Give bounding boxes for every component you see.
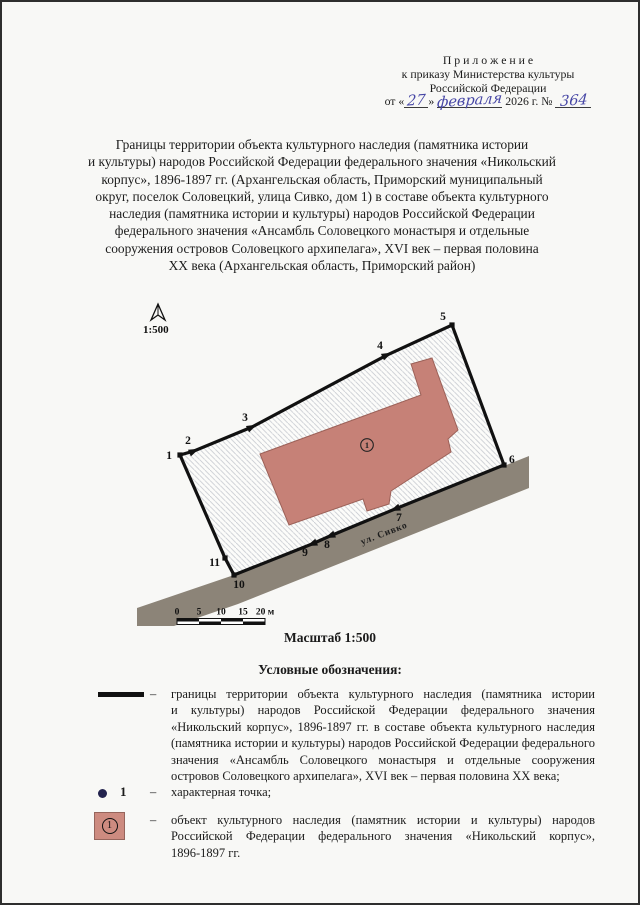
legend-symbol-cell: 1 (92, 812, 150, 840)
text-line: наследия (памятника истории и культуры) … (54, 205, 590, 222)
text-line: (памятника истории и культуры) народов Р… (171, 735, 595, 751)
text-line: Российской Федерации федерального значен… (171, 828, 595, 844)
date-month-blank: февраля (437, 95, 502, 108)
scalebar-tick: 5 (197, 608, 202, 618)
legend-item-point: 1 – характерная точка; (92, 784, 595, 800)
legend-symbol-cell: 1 (92, 784, 150, 800)
legend-symbol-cell (92, 686, 150, 697)
vertex-label-6: 6 (509, 454, 515, 466)
vertex-marker (501, 462, 506, 467)
vertex-marker (222, 555, 227, 560)
vertex-marker (449, 322, 454, 327)
legend-item-object-text: объект культурного наследия (памятник ис… (171, 812, 595, 861)
vertex-label-5: 5 (440, 311, 446, 323)
vertex-label-9: 9 (302, 547, 308, 559)
scalebar-tick: 15 (238, 608, 248, 618)
text-line: сооружения островов Соловецкого архипела… (54, 240, 590, 257)
text-line: границы территории объекта культурного н… (171, 686, 595, 702)
document-title: Границы территории объекта культурного н… (54, 136, 590, 274)
date-day-blank: 27 (404, 95, 428, 108)
date-prefix: от « (385, 94, 405, 108)
text-line: «Никольский корпус», 1896-1897 гг. в сос… (171, 719, 595, 735)
handwritten-number: 364 (559, 94, 587, 108)
legend-item-boundary-text: границы территории объекта культурного н… (171, 686, 595, 784)
text-line: корпус», 1896-1897 гг. (Архангельская об… (54, 171, 590, 188)
legend-item-boundary: – границы территории объекта культурного… (92, 686, 595, 784)
vertex-label-11: 11 (209, 557, 220, 569)
scalebar-tick: 20 м (256, 608, 275, 618)
scalebar-tick: 10 (216, 608, 226, 618)
vertex-label-10: 10 (233, 579, 245, 591)
object-number-circle: 1 (102, 818, 118, 834)
document-page: П р и л о ж е н и е к приказу Министерст… (0, 0, 640, 905)
point-number: 1 (120, 784, 127, 800)
vertex-marker (231, 572, 236, 577)
vertex-label-8: 8 (324, 539, 330, 551)
order-header-line2: к приказу Министерства культуры (370, 68, 606, 82)
handwritten-day: 27 (407, 95, 426, 108)
text-line: округ, поселок Соловецкий, улица Сивко, … (54, 188, 590, 205)
legend-heading: Условные обозначения: (18, 662, 640, 678)
vertex-label-2: 2 (185, 435, 191, 447)
heritage-object-swatch: 1 (94, 812, 125, 840)
legend-dash: – (150, 686, 171, 702)
order-date-line: от «27» февраля 2026 г. № 364 (370, 95, 606, 109)
text-line: федерального значения «Ансамбль Соловецк… (54, 222, 590, 239)
order-header-line1: П р и л о ж е н и е (370, 54, 606, 68)
text-line: объект культурного наследия (памятник ис… (171, 812, 595, 828)
text-line: Границы территории объекта культурного н… (54, 136, 590, 153)
text-line: значения «Ансамбль Соловецкого монастыря… (171, 752, 595, 768)
order-header: П р и л о ж е н и е к приказу Министерст… (370, 54, 606, 109)
vertex-label-3: 3 (242, 412, 248, 424)
map-scale-caption: Масштаб 1:500 (18, 630, 640, 646)
boundary-map: 112345678910111:50005101520 мул. Сивко (130, 295, 542, 655)
boundary-line-symbol (98, 692, 144, 697)
map-scale-label: 1:500 (143, 324, 169, 336)
text-line: островов Соловецкого архипелага», XVI ве… (171, 768, 595, 784)
legend-item-point-text: характерная точка; (171, 784, 595, 800)
building-number: 1 (365, 440, 369, 450)
doc-number-blank: 364 (555, 95, 591, 108)
legend-item-object: 1 – объект культурного наследия (памятни… (92, 812, 595, 861)
vertex-label-4: 4 (377, 340, 383, 352)
vertex-marker (177, 452, 182, 457)
text-line: 1896-1897 гг. (171, 845, 595, 861)
date-year: 2026 г. № (505, 94, 552, 108)
vertex-label-1: 1 (166, 450, 172, 462)
date-mid: » (428, 94, 434, 108)
scalebar-tick: 0 (175, 608, 180, 618)
text-line: и культуры) народов Российской Федерации… (171, 702, 595, 718)
legend-dash: – (150, 784, 171, 800)
characteristic-point-icon (98, 789, 107, 798)
handwritten-month: февраля (437, 93, 503, 110)
text-line: и культуры) народов Российской Федерации… (54, 153, 590, 170)
legend-dash: – (150, 812, 171, 828)
text-line: XX века (Архангельская область, Приморск… (54, 257, 590, 274)
